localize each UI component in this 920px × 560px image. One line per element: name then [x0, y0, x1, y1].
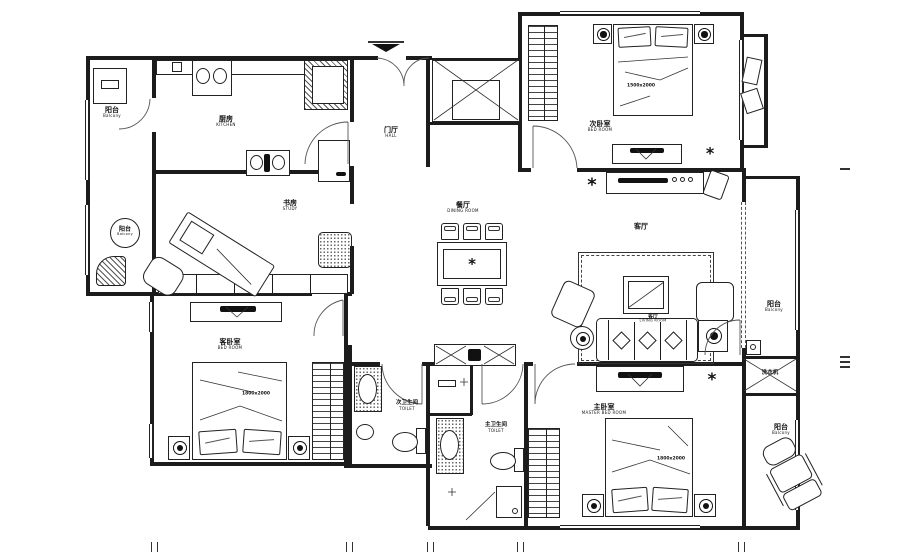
- sideboard-cup: [688, 177, 693, 182]
- entry-door-left: [377, 58, 404, 86]
- plant-icon: *: [706, 144, 714, 163]
- window: [795, 420, 800, 510]
- drain: [512, 508, 518, 514]
- lamp-icon: [699, 499, 713, 513]
- tv-cabinet: [190, 302, 282, 322]
- shower-bench: [496, 486, 522, 518]
- floor-plan: * * *: [0, 0, 920, 560]
- wardrobe: [312, 362, 344, 460]
- corner-item: [702, 169, 730, 200]
- wall-segment: [426, 362, 430, 526]
- dimension-tick: [738, 542, 745, 552]
- dining-chair: [485, 288, 503, 305]
- bookshelf-divider: [234, 274, 235, 294]
- basin: [358, 374, 377, 404]
- lamp-icon: [597, 28, 610, 41]
- faucet-cross: [460, 378, 468, 386]
- entry-mark-line: [368, 41, 404, 43]
- room-label-balcony-east: 阳台 Balcony: [765, 301, 783, 313]
- toilet-bowl: [490, 452, 516, 470]
- wall-segment: [152, 462, 348, 466]
- window: [149, 302, 154, 332]
- tv-set: [630, 148, 664, 153]
- sofa-seat-divider: [634, 322, 635, 360]
- bed-size-master: 1800x2000: [657, 457, 685, 462]
- entry-arrow-icon: [372, 44, 400, 52]
- room-label-balcony-nw: 阳台 Balcony: [103, 107, 121, 119]
- window: [739, 40, 744, 140]
- pillow: [242, 429, 282, 456]
- dining-chair: [441, 288, 459, 305]
- sofa-seat-divider: [660, 322, 661, 360]
- room-label-study: 书房 STUDY: [283, 200, 298, 212]
- basin: [440, 430, 459, 460]
- plant-icon: *: [587, 175, 596, 196]
- wall-segment: [740, 34, 768, 37]
- wall-segment: [518, 168, 531, 172]
- sideboard: [606, 172, 704, 194]
- sofa-armrest: [608, 320, 609, 360]
- room-label-living-tag: 客厅: [634, 223, 648, 230]
- cabinet-center: [468, 349, 481, 361]
- wall-segment: [470, 365, 473, 415]
- lamp-icon: [576, 332, 590, 346]
- room-label-kitchen: 厨房 KITCHEN: [216, 116, 235, 128]
- balcony-chair: [96, 256, 126, 286]
- washbasin-symbol: [438, 380, 456, 387]
- kitchen-appliance: [318, 140, 350, 182]
- wall-segment: [86, 292, 154, 296]
- wall-segment: [764, 34, 768, 148]
- tv-cabinet: [612, 144, 682, 164]
- room-label-second-bath: 次卫生间 TOILET: [396, 401, 418, 411]
- lamp-icon: [706, 328, 722, 344]
- balcony-item: [741, 57, 762, 86]
- room-label-dining: 餐厅 DINING ROOM: [447, 202, 479, 214]
- wall-segment: [742, 526, 800, 530]
- armchair-right: [696, 282, 734, 322]
- dining-chair: [463, 288, 481, 305]
- wardrobe: [528, 428, 560, 518]
- pillow: [651, 487, 689, 513]
- appliance-handle: [336, 172, 346, 176]
- room-label-living: 客厅 LIVING ROOM: [639, 315, 666, 324]
- tv-set: [220, 306, 256, 312]
- plant-icon: *: [708, 370, 717, 390]
- sink-bowl: [196, 68, 210, 84]
- tv-set: [618, 372, 662, 378]
- pillow: [654, 26, 688, 48]
- label-laundry-cabinet: 洗衣机: [762, 371, 779, 377]
- wall-segment: [426, 58, 430, 122]
- table-star-icon: *: [468, 255, 476, 273]
- sink-bowl: [213, 68, 227, 84]
- wall-segment: [428, 413, 472, 416]
- round-sink: [356, 424, 374, 440]
- wall-segment: [742, 393, 800, 396]
- bookshelf-divider: [272, 274, 273, 294]
- bed-size-second: 1500x2000: [627, 84, 655, 89]
- edge-mark: [840, 356, 850, 358]
- bed-size-guest: 1800x2000: [242, 392, 270, 397]
- sliding-door: [741, 202, 746, 348]
- dimension-tick: [151, 542, 158, 552]
- entry-closet-inner: [452, 80, 500, 120]
- room-label-second-bedroom: 次卧室 BED ROOM: [588, 121, 613, 133]
- lounge-chair: [755, 432, 826, 513]
- tv-screen: [628, 281, 664, 309]
- kitchen-small-box: [172, 62, 182, 72]
- wall-segment: [428, 526, 520, 530]
- sofa-armrest: [686, 320, 687, 360]
- wall-segment: [742, 348, 746, 528]
- window: [795, 210, 800, 330]
- wall-segment: [426, 125, 430, 167]
- stove-divider: [264, 154, 270, 172]
- wall-segment: [742, 356, 800, 359]
- lamp-icon: [173, 441, 187, 455]
- window: [149, 424, 154, 458]
- drain: [750, 344, 756, 350]
- bookshelf-divider: [310, 274, 311, 294]
- lamp-icon: [293, 441, 307, 455]
- dimension-tick: [427, 542, 434, 552]
- room-label-hall: 门厅 HALL: [384, 127, 398, 139]
- room-label-balcony-se: 阳台 Balcony: [772, 424, 790, 436]
- wall-segment: [348, 345, 352, 468]
- wall-segment: [742, 176, 800, 179]
- window: [560, 11, 700, 16]
- wall-segment: [354, 56, 378, 60]
- bookshelf-divider: [196, 274, 197, 294]
- sideboard-tray: [618, 178, 668, 183]
- second-bath-door: [382, 364, 422, 404]
- dining-chair: [441, 223, 459, 240]
- second-bedroom-door: [533, 126, 577, 168]
- dining-chair: [463, 223, 481, 240]
- master-bedroom-door: [535, 364, 575, 404]
- window: [560, 525, 700, 530]
- bookshelf-item: [248, 282, 258, 287]
- wall-segment: [350, 56, 354, 122]
- burner: [250, 155, 263, 170]
- guest-bedroom-door: [314, 300, 343, 336]
- room-label-guest-bedroom: 客卧室 BED ROOM: [218, 339, 243, 351]
- window: [85, 100, 90, 180]
- edge-mark: [840, 366, 850, 368]
- room-label-master-bath: 主卫生间 TOILET: [485, 423, 507, 433]
- burner: [272, 155, 285, 170]
- pillow: [617, 26, 651, 48]
- wall-segment: [742, 168, 746, 202]
- lamp-icon: [587, 499, 601, 513]
- wall-segment: [152, 132, 156, 296]
- wall-segment: [352, 464, 432, 468]
- shower-corner: [448, 488, 495, 520]
- room-label-master-bedroom: 主卧室 MASTER BED ROOM: [582, 404, 626, 416]
- edge-mark: [840, 361, 850, 363]
- dimension-tick: [517, 542, 524, 552]
- study-armchair: [318, 232, 352, 268]
- wall-segment: [740, 145, 768, 148]
- dining-chair: [485, 223, 503, 240]
- pillow: [611, 487, 649, 513]
- master-bath-door: [482, 364, 523, 404]
- sideboard-cup: [680, 177, 685, 182]
- tv-cabinet: [596, 366, 684, 392]
- sideboard-cup: [672, 177, 677, 182]
- wall-segment: [426, 122, 522, 125]
- toilet-bowl: [392, 432, 418, 452]
- fridge-body: [312, 66, 344, 104]
- washing-machine-door: [101, 80, 119, 89]
- pillow: [198, 429, 238, 456]
- edge-mark: [840, 168, 850, 170]
- room-label-balcony-w: 阳台 Balcony: [117, 227, 133, 237]
- dimension-tick: [346, 542, 353, 552]
- lamp-icon: [698, 28, 711, 41]
- window: [85, 205, 90, 275]
- wall-segment: [350, 166, 354, 204]
- wardrobe: [528, 25, 558, 121]
